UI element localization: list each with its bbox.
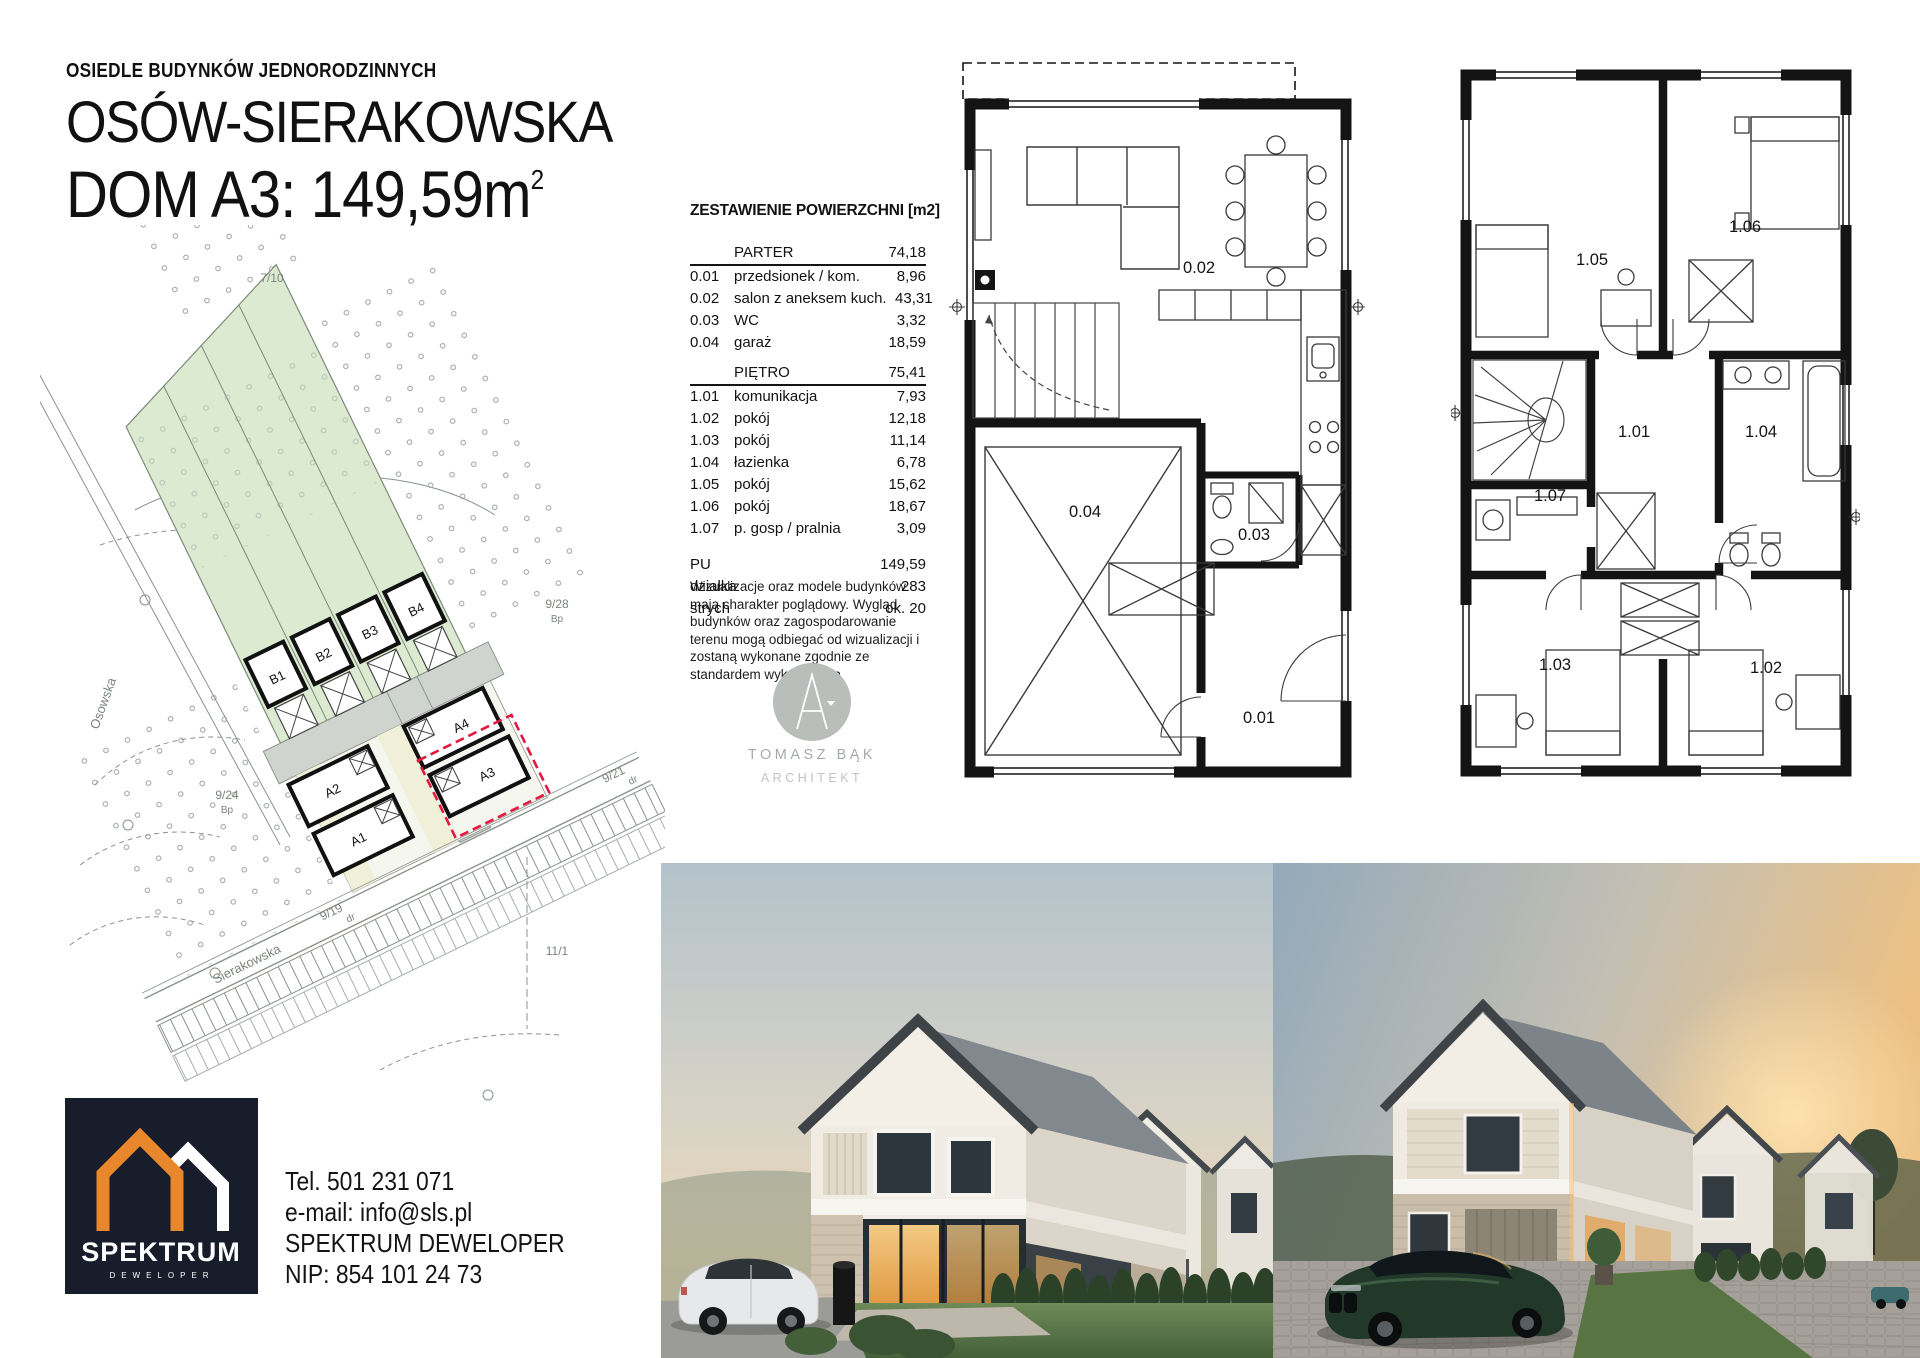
render-right <box>1273 863 1920 1358</box>
architect-role: ARCHITEKT <box>761 771 863 785</box>
table-row: 1.01komunikacja7,93 <box>690 386 926 408</box>
header-block: OSIEDLE BUDYNKÓW JEDNORODZINNYCH OSÓW-SI… <box>66 60 673 232</box>
row-no: 0.04 <box>690 332 734 354</box>
row-no: 1.01 <box>690 386 734 408</box>
tv-board <box>975 150 991 240</box>
row-no: 0.01 <box>690 266 734 288</box>
logo-wordmark: SPEKTRUM <box>81 1237 241 1267</box>
bathroom-fixtures <box>1723 361 1845 566</box>
parcel-924-bp-label: Bp <box>221 805 234 816</box>
row-value: 43,31 <box>887 288 933 310</box>
row-label: przedsionek / kom. <box>734 266 880 288</box>
row-no: 1.03 <box>690 430 734 452</box>
parcel-710-label: 7/10 <box>260 271 284 285</box>
section-name: PARTER <box>734 242 880 264</box>
table-row: 0.02salon z aneksem kuch.43,31 <box>690 288 926 310</box>
street-osowska-label: Osowska <box>87 675 120 731</box>
unit-title: DOM A3: 149,59m2 <box>66 156 600 232</box>
unit-title-sup: 2 <box>531 164 544 195</box>
section-name: PIĘTRO <box>734 362 880 384</box>
parcel-928-bp-label: Bp <box>551 614 564 625</box>
floor-plan-ground: 0.02 0.04 0.03 0.01 <box>949 55 1365 790</box>
row-value: 15,62 <box>880 474 926 496</box>
estate-title: OSÓW-SIERAKOWSKA <box>66 89 612 156</box>
table-row: 0.01przedsionek / kom.8,96 <box>690 266 926 288</box>
stairs <box>973 303 1119 418</box>
row-value: 3,32 <box>880 310 926 332</box>
dining-set <box>1226 136 1326 286</box>
sofa <box>1027 147 1179 269</box>
table-row: 1.07p. gosp / pralnia3,09 <box>690 518 926 540</box>
row-label: WC <box>734 310 880 332</box>
row-label: garaż <box>734 332 880 354</box>
row-no: 0.02 <box>690 288 734 310</box>
windows <box>1459 68 1853 778</box>
parcel-924-label: 9/24 <box>215 788 239 802</box>
email-line: e-mail: info@sls.pl <box>285 1197 565 1228</box>
parcel-921-label: 9/21 <box>600 763 627 786</box>
row-label: łazienka <box>734 452 880 474</box>
door-arcs <box>1546 319 1757 610</box>
windows <box>963 97 1352 780</box>
row-no: 1.04 <box>690 452 734 474</box>
room-label-003: 0.03 <box>1238 526 1270 544</box>
row-no: 1.05 <box>690 474 734 496</box>
row-value: 11,14 <box>880 430 926 452</box>
dimension-marker-icon <box>949 299 1365 315</box>
interior-walls <box>1466 75 1846 771</box>
room-label-103: 1.03 <box>1539 656 1571 674</box>
table-row: 1.05pokój15,62 <box>690 474 926 496</box>
table-row: 1.04łazienka6,78 <box>690 452 926 474</box>
row-no: 1.07 <box>690 518 734 540</box>
room-label-102: 1.02 <box>1750 659 1782 677</box>
render-left <box>661 863 1273 1358</box>
terrace-outline <box>963 63 1295 99</box>
row-value: 18,59 <box>880 332 926 354</box>
room-label-001: 0.01 <box>1243 709 1275 727</box>
room-label-106: 1.06 <box>1729 218 1761 236</box>
architect-name: TOMASZ BĄK <box>748 747 876 763</box>
unit-title-text: DOM A3: 149,59m <box>66 157 531 231</box>
row-label: pokój <box>734 408 880 430</box>
logo-sub-wordmark: DEWELOPER <box>109 1271 214 1280</box>
stairs <box>1473 360 1586 480</box>
row-value: 3,09 <box>880 518 926 540</box>
table-row: 1.02pokój12,18 <box>690 408 926 430</box>
flyer-page: OSIEDLE BUDYNKÓW JEDNORODZINNYCH OSÓW-SI… <box>0 0 1920 1358</box>
room-label-004: 0.04 <box>1069 503 1101 521</box>
summary-value: 149,59 <box>880 554 926 576</box>
room-label-105: 1.05 <box>1576 251 1608 269</box>
garage <box>985 447 1181 755</box>
row-no: 0.03 <box>690 310 734 332</box>
company-line: SPEKTRUM DEWELOPER <box>285 1228 565 1259</box>
row-value: 7,93 <box>880 386 926 408</box>
row-no: 1.02 <box>690 408 734 430</box>
summary-row: PU149,59 <box>690 554 926 576</box>
room-label-107: 1.07 <box>1534 487 1566 505</box>
row-value: 18,67 <box>880 496 926 518</box>
section-total: 75,41 <box>880 362 926 384</box>
estate-subtitle: OSIEDLE BUDYNKÓW JEDNORODZINNYCH <box>66 60 588 83</box>
table-row: 0.03WC3,32 <box>690 310 926 332</box>
row-label: komunikacja <box>734 386 880 408</box>
nip-line: NIP: 854 101 24 73 <box>285 1259 565 1290</box>
parcel-921-dr-label: dr <box>627 774 640 788</box>
table-row: 1.03pokój11,14 <box>690 430 926 452</box>
contact-block: Tel. 501 231 071 e-mail: info@sls.pl SPE… <box>285 1166 603 1290</box>
architect-logo: TOMASZ BĄK ARCHITEKT <box>745 655 885 800</box>
table-row: 1.06pokój18,67 <box>690 496 926 518</box>
row-label: salon z aneksem kuch. <box>734 288 887 310</box>
floor-plan-upper: 1.05 1.06 1.01 1.04 1.07 1.03 1.02 <box>1451 55 1860 790</box>
fireplace <box>975 270 995 290</box>
row-no: 1.06 <box>690 496 734 518</box>
table-section-parter: PARTER 74,18 <box>690 242 926 266</box>
row-label: pokój <box>734 496 880 518</box>
row-label: pokój <box>734 430 880 452</box>
area-table: ZESTAWIENIE POWIERZCHNI [m2] PARTER 74,1… <box>690 200 926 620</box>
row-label: p. gosp / pralnia <box>734 518 880 540</box>
row-value: 12,18 <box>880 408 926 430</box>
row-value: 6,78 <box>880 452 926 474</box>
area-table-title: ZESTAWIENIE POWIERZCHNI [m2] <box>690 200 926 222</box>
grill-post <box>833 1261 855 1325</box>
parcel-919-dr-label: dr <box>344 911 357 925</box>
spektrum-logo: SPEKTRUM DEWELOPER <box>65 1098 258 1294</box>
room-label-104: 1.04 <box>1745 423 1777 441</box>
summary-label: PU <box>690 554 880 576</box>
table-section-pietro: PIĘTRO 75,41 <box>690 362 926 386</box>
phone-line: Tel. 501 231 071 <box>285 1166 565 1197</box>
table-row: 0.04garaż18,59 <box>690 332 926 354</box>
room-label-002: 0.02 <box>1183 259 1215 277</box>
row-value: 8,96 <box>880 266 926 288</box>
row-label: pokój <box>734 474 880 496</box>
room-label-101: 1.01 <box>1618 423 1650 441</box>
outer-walls <box>1466 75 1846 771</box>
parcel-111-label: 11/1 <box>546 944 569 958</box>
parcel-928-label: 9/28 <box>545 597 569 611</box>
section-total: 74,18 <box>880 242 926 264</box>
